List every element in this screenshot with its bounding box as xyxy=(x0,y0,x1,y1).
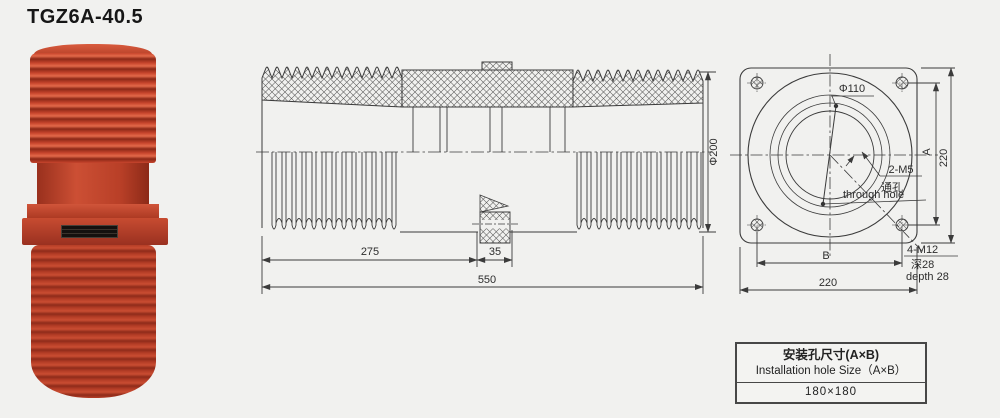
photo-ribbed-body xyxy=(31,245,156,398)
photo-flange xyxy=(22,218,168,245)
label-m12-en: depth 28 xyxy=(906,271,949,283)
dim-a: A xyxy=(921,148,933,156)
dim-35: 35 xyxy=(489,246,501,258)
photo-ribbed-top xyxy=(30,53,156,163)
sheds-right xyxy=(577,152,701,229)
front-view-drawing: Φ110 2-M5 通孔 through hole A 220 B 220 4-… xyxy=(718,40,1000,312)
label-dia110: Φ110 xyxy=(839,83,865,95)
m5-leader xyxy=(862,152,880,176)
dim-220-vertical: 220 xyxy=(938,149,950,167)
flange-square xyxy=(740,68,917,243)
label-m12: 4-M12 xyxy=(907,244,938,256)
photo-flange-step xyxy=(27,204,159,218)
product-photo xyxy=(22,44,168,402)
table-value: 180×180 xyxy=(737,383,925,402)
flange-edge-lines xyxy=(413,107,565,152)
section-hatch-right xyxy=(573,70,703,107)
dim-275: 275 xyxy=(361,246,379,258)
label-m5-en: through hole xyxy=(843,189,904,201)
dim-220-horizontal: 220 xyxy=(819,277,837,289)
installation-table: 安装孔尺寸(A×B) Installation hole Size（A×B） 1… xyxy=(735,342,927,404)
page-title: TGZ6A-40.5 xyxy=(27,6,143,29)
sheds-left xyxy=(272,152,396,229)
dim-550: 550 xyxy=(478,274,496,286)
photo-neck xyxy=(37,163,149,206)
side-view-drawing: 275 35 550 Φ200 xyxy=(220,40,720,312)
table-title-cn: 安装孔尺寸(A×B) xyxy=(739,348,923,364)
section-hatch-left xyxy=(262,67,402,107)
installation-table-header: 安装孔尺寸(A×B) Installation hole Size（A×B） xyxy=(737,344,925,383)
m5-leader-arrow2 xyxy=(846,156,854,166)
label-m12-cn: 深28 xyxy=(911,258,934,271)
table-title-en: Installation hole Size（A×B） xyxy=(739,364,923,379)
section-hatch-flange xyxy=(402,70,573,107)
datasheet-page: TGZ6A-40.5 xyxy=(0,0,1000,418)
label-m5: 2-M5 xyxy=(888,164,913,176)
photo-nameplate xyxy=(61,225,118,238)
flange-top-boss xyxy=(482,62,512,70)
dim-b: B xyxy=(822,250,829,262)
m5-boss-wedge xyxy=(480,195,508,212)
